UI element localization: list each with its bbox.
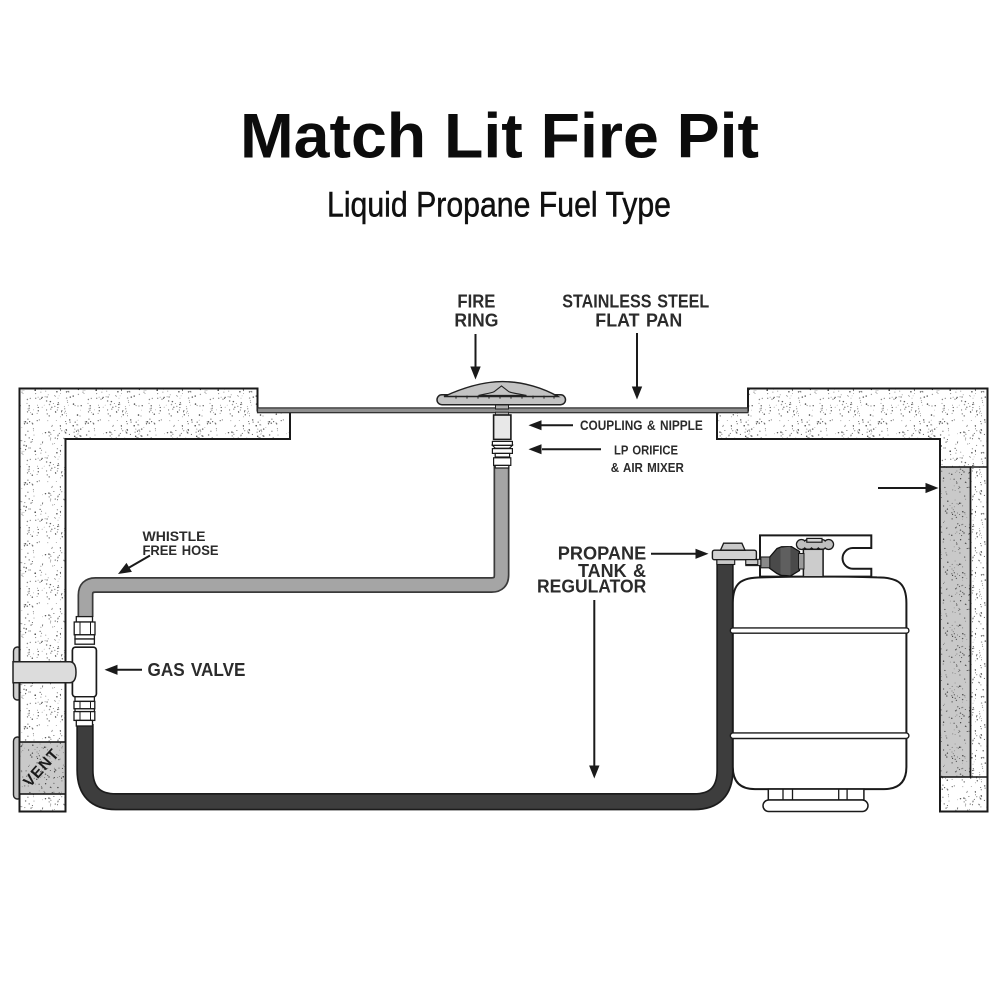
svg-text:REGULATOR: REGULATOR — [537, 575, 647, 596]
svg-text:RING: RING — [454, 309, 498, 330]
svg-text:LP ORIFICE: LP ORIFICE — [614, 442, 678, 457]
svg-text:Liquid Propane Fuel Type: Liquid Propane Fuel Type — [327, 185, 671, 225]
svg-text:GAS VALVE: GAS VALVE — [148, 659, 246, 680]
svg-text:FLAT PAN: FLAT PAN — [595, 309, 682, 330]
svg-text:COUPLING & NIPPLE: COUPLING & NIPPLE — [580, 418, 703, 433]
svg-text:FREE HOSE: FREE HOSE — [143, 543, 219, 559]
svg-text:& AIR MIXER: & AIR MIXER — [611, 460, 685, 475]
svg-text:Match Lit Fire Pit: Match Lit Fire Pit — [240, 102, 759, 172]
